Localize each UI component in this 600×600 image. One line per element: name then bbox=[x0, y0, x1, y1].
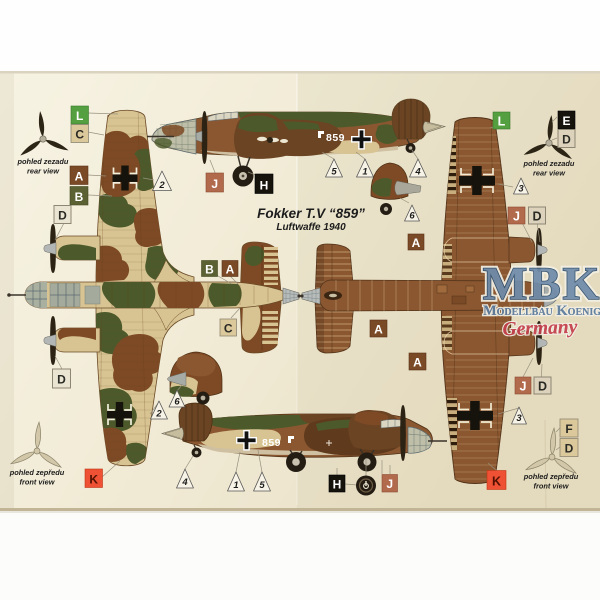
svg-text:D: D bbox=[538, 380, 547, 394]
svg-text:859: 859 bbox=[262, 437, 281, 449]
svg-text:L: L bbox=[76, 109, 83, 123]
svg-text:H: H bbox=[333, 478, 342, 492]
svg-text:K: K bbox=[492, 475, 501, 489]
svg-text:B: B bbox=[205, 263, 214, 277]
svg-text:5: 5 bbox=[259, 480, 265, 491]
svg-text:A: A bbox=[226, 263, 235, 277]
svg-text:D: D bbox=[58, 209, 67, 223]
svg-text:4: 4 bbox=[181, 477, 188, 488]
svg-text:D: D bbox=[565, 442, 574, 456]
svg-text:A: A bbox=[413, 356, 422, 370]
svg-text:pohled zezadu: pohled zezadu bbox=[523, 159, 575, 168]
svg-text:B: B bbox=[75, 190, 84, 204]
svg-text:2: 2 bbox=[155, 409, 162, 420]
svg-text:E: E bbox=[562, 114, 570, 128]
svg-text:front view: front view bbox=[534, 482, 570, 491]
svg-text:pohled zezadu: pohled zezadu bbox=[17, 157, 69, 166]
svg-text:K: K bbox=[89, 473, 98, 487]
svg-text:Germany: Germany bbox=[502, 317, 578, 341]
svg-text:C: C bbox=[75, 128, 84, 142]
svg-text:6: 6 bbox=[174, 397, 180, 408]
svg-text:3: 3 bbox=[518, 184, 524, 195]
svg-text:J: J bbox=[386, 477, 393, 491]
svg-text:D: D bbox=[562, 133, 571, 147]
svg-text:D: D bbox=[532, 210, 541, 224]
svg-text:front view: front view bbox=[20, 478, 56, 487]
svg-text:Fokker T.V “859”: Fokker T.V “859” bbox=[257, 206, 365, 221]
svg-text:J: J bbox=[520, 380, 527, 394]
svg-text:A: A bbox=[374, 323, 383, 337]
svg-text:pohled zepředu: pohled zepředu bbox=[9, 468, 65, 477]
svg-text:D: D bbox=[57, 373, 66, 387]
svg-text:F: F bbox=[565, 422, 572, 436]
svg-text:rear view: rear view bbox=[533, 169, 566, 178]
svg-text:H: H bbox=[260, 179, 269, 193]
svg-text:2: 2 bbox=[158, 180, 165, 191]
svg-text:Modellbau Koenig: Modellbau Koenig bbox=[483, 303, 600, 319]
svg-text:J: J bbox=[211, 177, 218, 191]
svg-text:4: 4 bbox=[414, 167, 421, 178]
svg-text:1: 1 bbox=[233, 480, 238, 491]
svg-text:859: 859 bbox=[326, 132, 345, 144]
svg-text:pohled zepředu: pohled zepředu bbox=[523, 472, 579, 481]
svg-text:C: C bbox=[224, 322, 233, 336]
svg-text:J: J bbox=[513, 210, 520, 224]
svg-text:3: 3 bbox=[516, 413, 522, 424]
svg-text:6: 6 bbox=[409, 211, 415, 222]
svg-text:L: L bbox=[498, 115, 506, 129]
svg-text:A: A bbox=[412, 236, 421, 250]
svg-text:5: 5 bbox=[331, 167, 337, 178]
svg-text:1: 1 bbox=[362, 167, 367, 178]
svg-text:Luftwaffe 1940: Luftwaffe 1940 bbox=[276, 222, 346, 233]
svg-text:rear view: rear view bbox=[27, 167, 60, 176]
svg-text:A: A bbox=[75, 170, 84, 184]
